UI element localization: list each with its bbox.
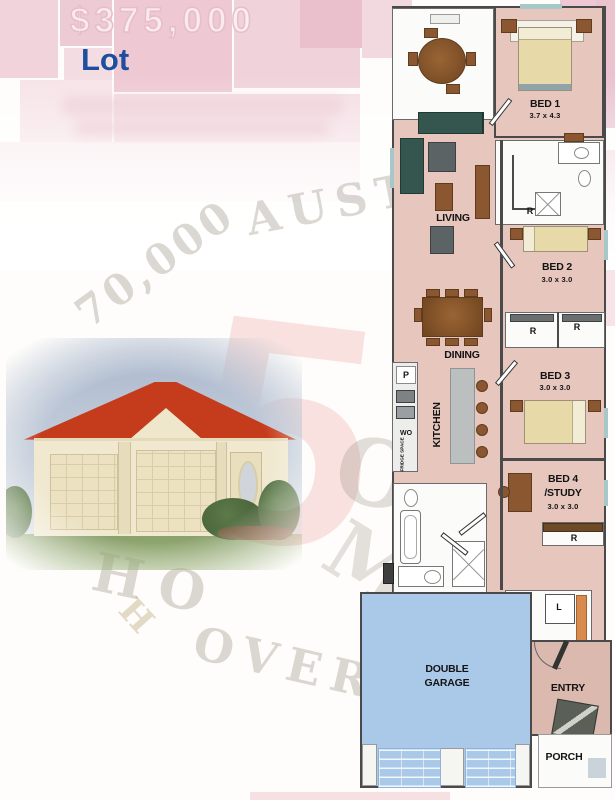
bedside-table [501, 19, 517, 33]
robe-divider [557, 312, 559, 348]
outdoor-chair [446, 84, 460, 94]
bathtub [400, 510, 421, 564]
toilet [404, 489, 418, 507]
bed3-window [604, 408, 608, 438]
ensuite-toilet [578, 170, 591, 187]
ensuite-shower [535, 192, 561, 216]
trough-label: L [549, 602, 569, 612]
entry-label: ENTRY [538, 683, 598, 695]
appliance [396, 390, 415, 403]
wir-wall [512, 155, 514, 210]
wall-oven-label: WO [396, 430, 416, 437]
garden-bed [218, 526, 292, 540]
stool [476, 380, 488, 392]
bed4-robe-shelf [543, 523, 603, 532]
scanned-brochure-page: { "header": { "price_ghost": "$375,000",… [0, 0, 615, 800]
stool [476, 446, 488, 458]
dining-chair [464, 289, 478, 297]
outdoor-chair [466, 52, 476, 66]
living-label: LIVING [413, 213, 493, 225]
bedside-table [588, 400, 601, 412]
laundry-door-panel [576, 595, 587, 645]
armchair [428, 142, 456, 172]
outdoor-bench [430, 14, 460, 24]
ghost-text-line [74, 120, 330, 136]
dining-chair [426, 289, 440, 297]
kitchen-island [450, 368, 475, 464]
lot-label: Lot [81, 42, 129, 78]
bed1-window [520, 4, 562, 9]
ghost-text-line [62, 96, 342, 116]
bed3-label: BED 3 [525, 371, 585, 383]
bed2-bed [523, 226, 588, 252]
dining-chair [445, 338, 459, 346]
bed1-foot [519, 84, 571, 90]
bedside-table [576, 19, 592, 33]
dining-table [422, 297, 483, 337]
bed1-label: BED 1 [515, 99, 575, 111]
bed2-label: BED 2 [527, 262, 587, 274]
ensuite-cabinet [564, 133, 584, 142]
fridge-space-label: FRIDGE SPACE [401, 434, 406, 474]
bed4-size: 3.0 x 3.0 [533, 503, 593, 511]
garage-door-panel [378, 748, 441, 788]
bed1-pillow [519, 28, 571, 40]
garage-label-line1: DOUBLE [407, 664, 487, 676]
dining-label: DINING [422, 350, 502, 362]
robe-label: R [564, 533, 584, 543]
outdoor-chair [408, 52, 418, 66]
robe-label: R [567, 322, 587, 332]
hot-water-unit [383, 563, 394, 584]
garage-door-panel [465, 748, 516, 788]
robe-label: R [523, 326, 543, 336]
appliance [396, 406, 415, 419]
garage-jamb [515, 744, 530, 786]
stool [476, 424, 488, 436]
bathtub-inner [404, 515, 417, 559]
garage-door-left [50, 454, 118, 530]
porch-label: PORCH [534, 752, 594, 764]
ghost-price-text: $375,000 [70, 1, 256, 41]
coffee-table [435, 183, 453, 211]
outdoor-table [418, 38, 466, 84]
hall-wall [500, 140, 503, 590]
pantry-label: P [396, 370, 416, 380]
house-render-image [6, 338, 302, 570]
outdoor-chair [424, 28, 438, 38]
bed4-label2: /STUDY [533, 488, 593, 500]
bed2-size: 3.0 x 3.0 [527, 276, 587, 284]
garage-label-line2: GARAGE [407, 678, 487, 690]
dining-chair [464, 338, 478, 346]
tv-unit [475, 165, 490, 219]
bed3-pillow [572, 401, 585, 443]
living-window [390, 148, 394, 188]
bed4-label: BED 4 [533, 474, 593, 486]
bath-basin [424, 570, 441, 584]
study-desk [508, 473, 532, 512]
bed3-bed [524, 400, 586, 444]
robe-shelf [510, 314, 554, 322]
bedside-table [510, 400, 523, 412]
floor-plan: BED 1 3.7 x 4.3 LIVING R BED 2 3.0 x 3.0… [352, 0, 615, 800]
robe-shelf [562, 314, 602, 322]
sofa-chaise [400, 138, 424, 194]
bedside-table [588, 228, 601, 240]
scan-artifact-square [588, 758, 606, 778]
bed3-size: 3.0 x 3.0 [525, 384, 585, 392]
armchair [430, 226, 454, 254]
bed2-pillow [524, 227, 535, 251]
ensuite-basin [574, 147, 589, 159]
kitchen-label: KITCHEN [432, 390, 444, 460]
dining-chair [414, 308, 422, 322]
dining-chair [484, 308, 492, 322]
dining-chair [445, 289, 459, 297]
bedside-table [510, 228, 523, 240]
dining-chair [426, 338, 440, 346]
bed1-bed [518, 27, 572, 91]
bed1-size: 3.7 x 4.3 [515, 112, 575, 120]
garage-jamb [362, 744, 377, 786]
stool [476, 402, 488, 414]
bed4-window [604, 480, 608, 506]
bed2-window [604, 230, 608, 260]
room-divider [500, 458, 604, 461]
sofa [418, 112, 484, 134]
pillar-center [118, 442, 131, 534]
garage-center-post [440, 748, 464, 786]
